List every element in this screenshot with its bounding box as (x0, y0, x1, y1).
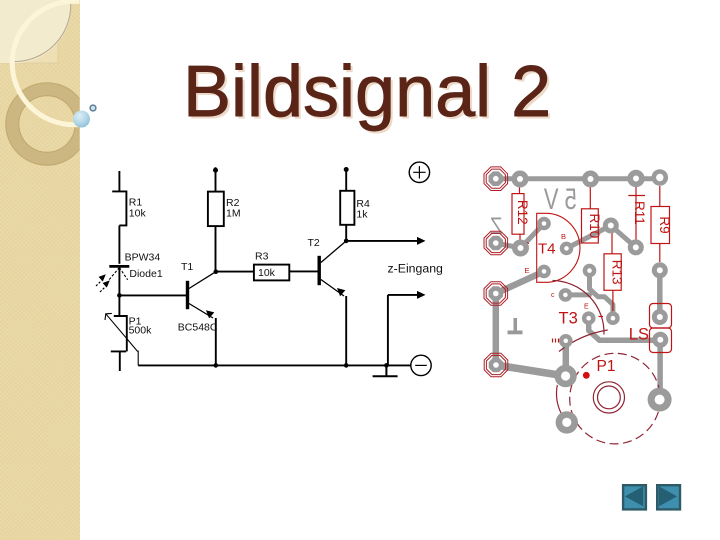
svg-text:1M: 1M (226, 207, 241, 219)
svg-text:T4: T4 (538, 241, 556, 258)
svg-text:BPW34: BPW34 (125, 252, 161, 264)
svg-text:BC548C: BC548C (178, 322, 218, 334)
svg-text:T1: T1 (181, 261, 193, 273)
svg-text:R12: R12 (515, 200, 530, 225)
svg-text:R11: R11 (632, 201, 647, 225)
svg-text:z-Eingang: z-Eingang (388, 262, 444, 276)
svg-text:R9: R9 (657, 216, 672, 233)
svg-text:P1: P1 (597, 358, 616, 375)
svg-text:5 V: 5 V (544, 183, 577, 216)
svg-text:c: c (551, 292, 555, 299)
svg-text:R13: R13 (610, 260, 625, 285)
svg-text:Diode1: Diode1 (129, 268, 162, 280)
svg-text:E: E (525, 266, 530, 275)
svg-text:10k: 10k (258, 267, 276, 279)
svg-text:E: E (584, 304, 589, 311)
svg-text:T3: T3 (559, 310, 578, 328)
svg-text:B: B (561, 232, 566, 241)
svg-text:10k: 10k (129, 208, 147, 220)
svg-text:R3: R3 (255, 251, 269, 263)
svg-text:T2: T2 (308, 237, 320, 249)
svg-text:1k: 1k (356, 209, 368, 221)
svg-text:500k: 500k (129, 325, 153, 337)
svg-text:R10: R10 (587, 214, 602, 239)
svg-text:LS: LS (629, 326, 649, 344)
